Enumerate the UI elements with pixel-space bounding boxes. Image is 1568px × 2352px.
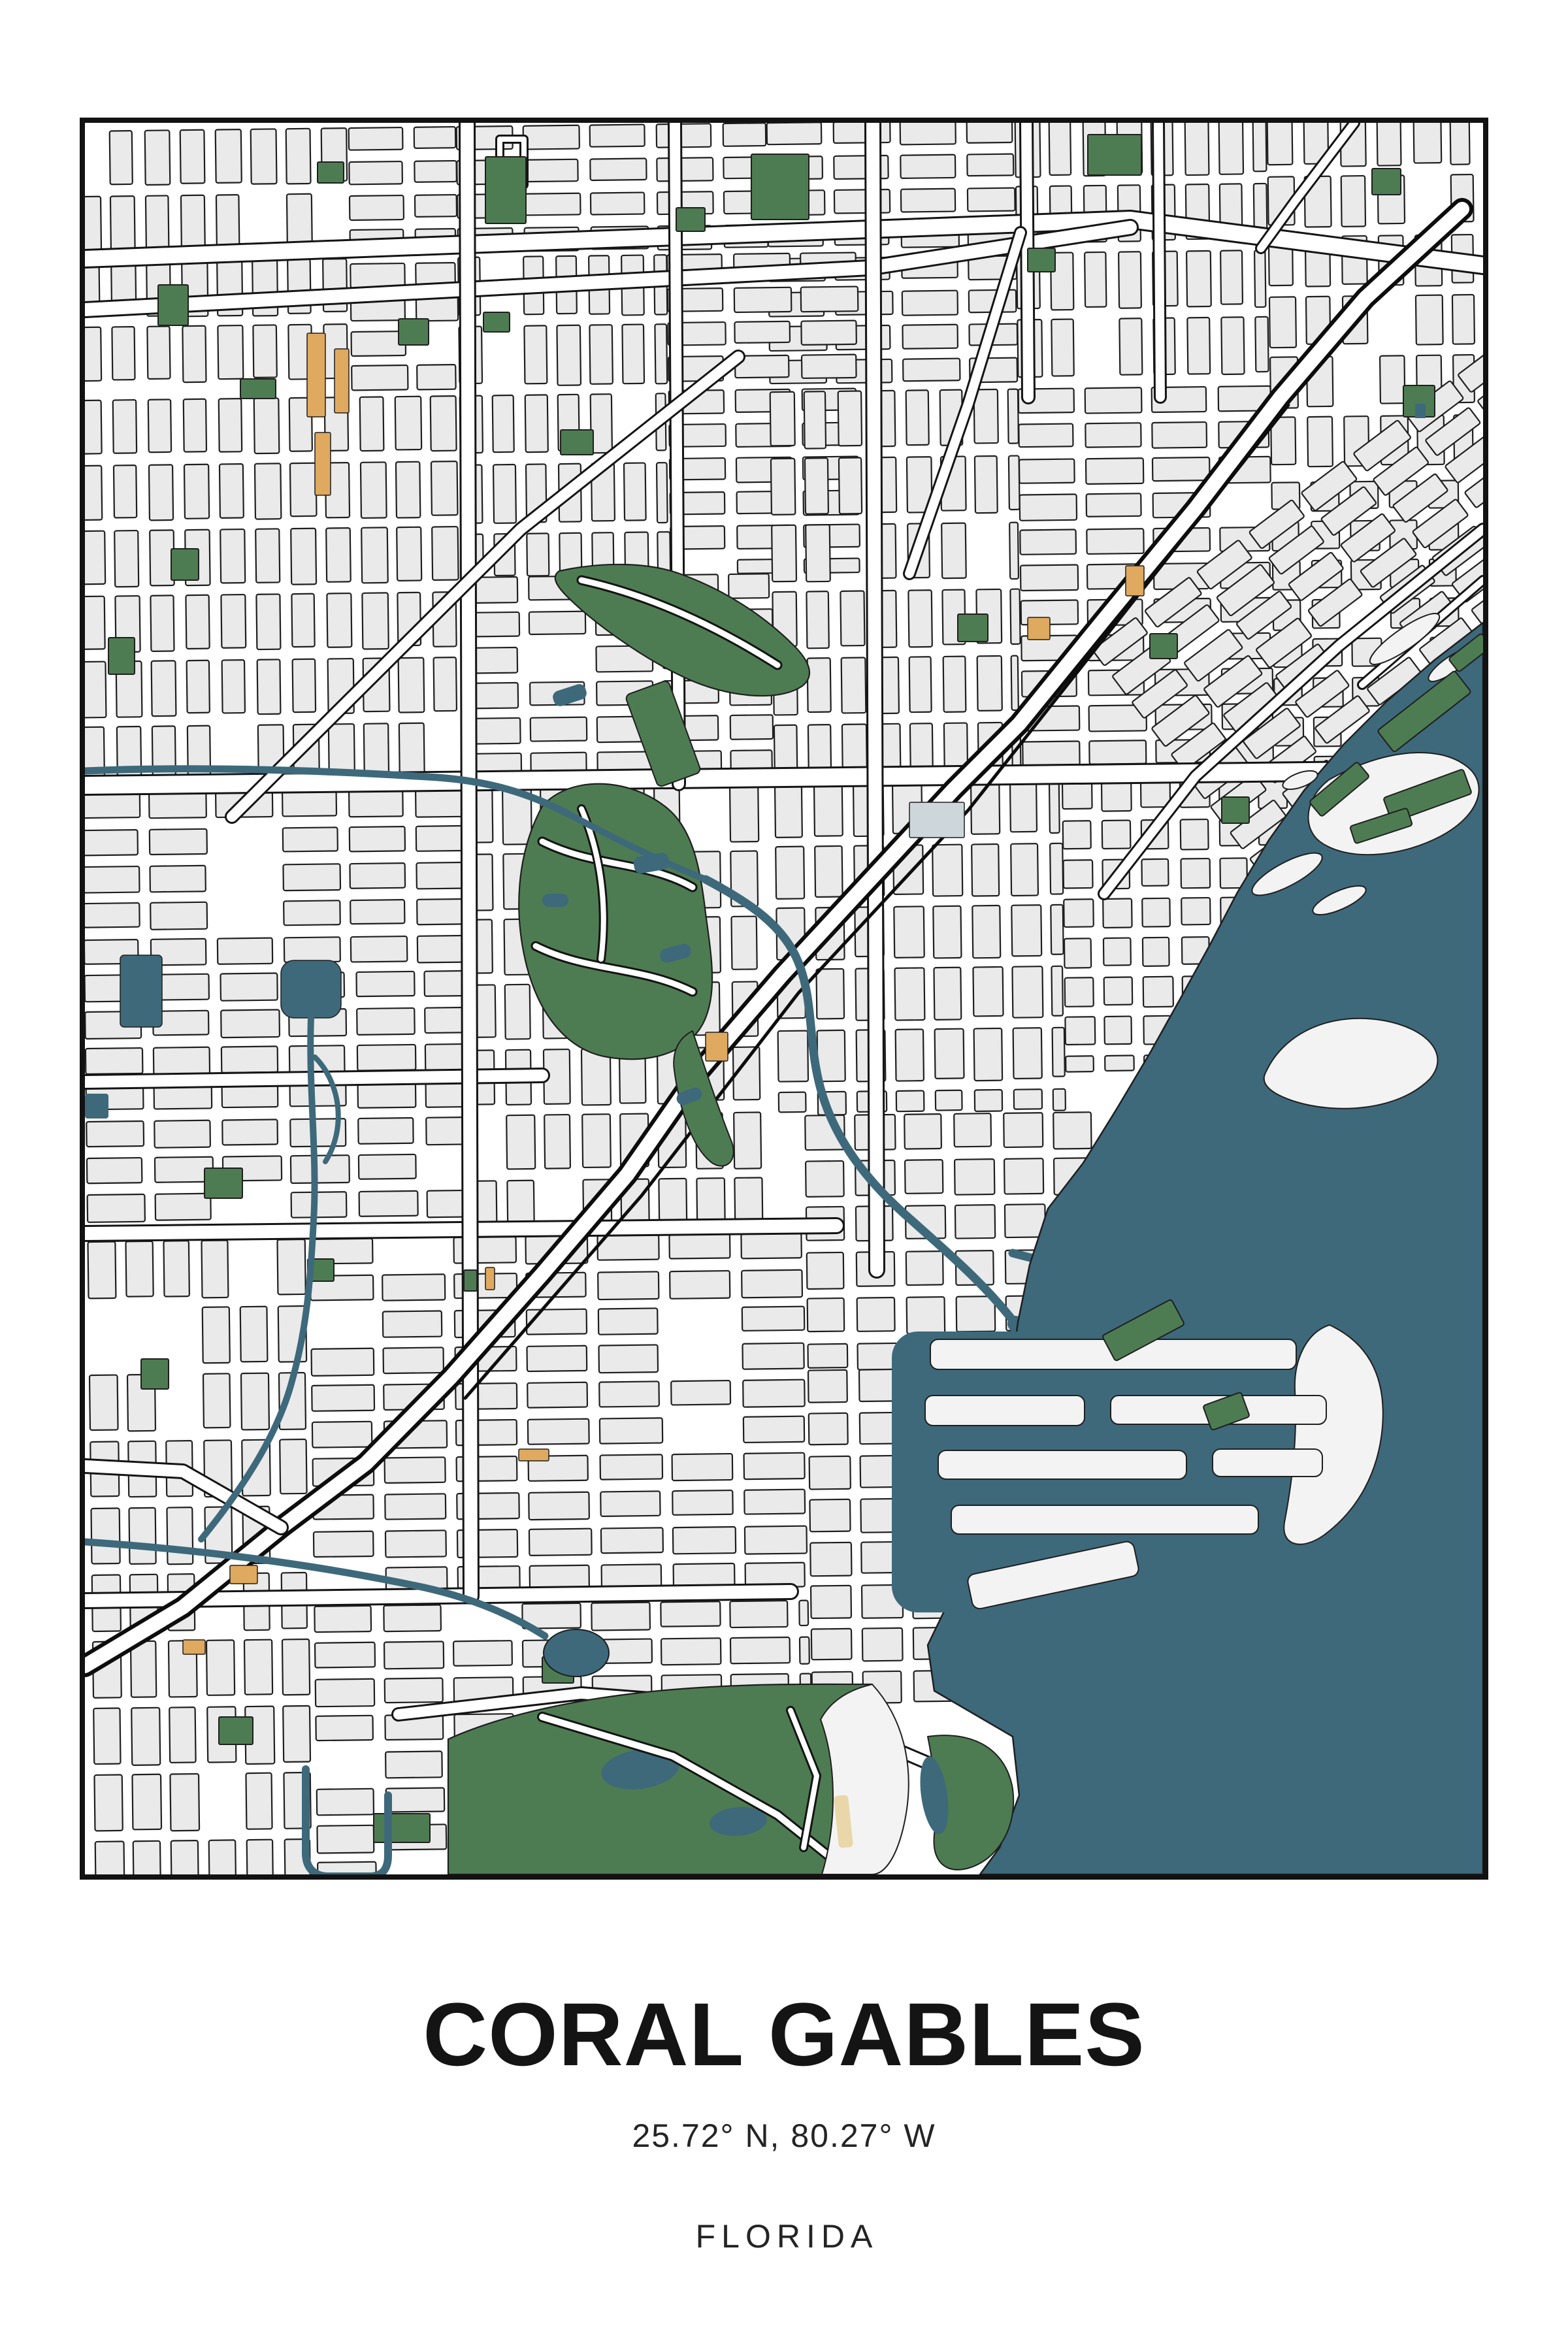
map-frame: [80, 118, 1488, 1880]
city-street-map: [85, 123, 1483, 1874]
state-label: FLORIDA: [0, 2219, 1568, 2255]
poster-page: CORAL GABLES 25.72° N, 80.27° W FLORIDA: [0, 0, 1568, 2352]
city-title: CORAL GABLES: [0, 1986, 1568, 2085]
coordinates-label: 25.72° N, 80.27° W: [0, 2118, 1568, 2154]
